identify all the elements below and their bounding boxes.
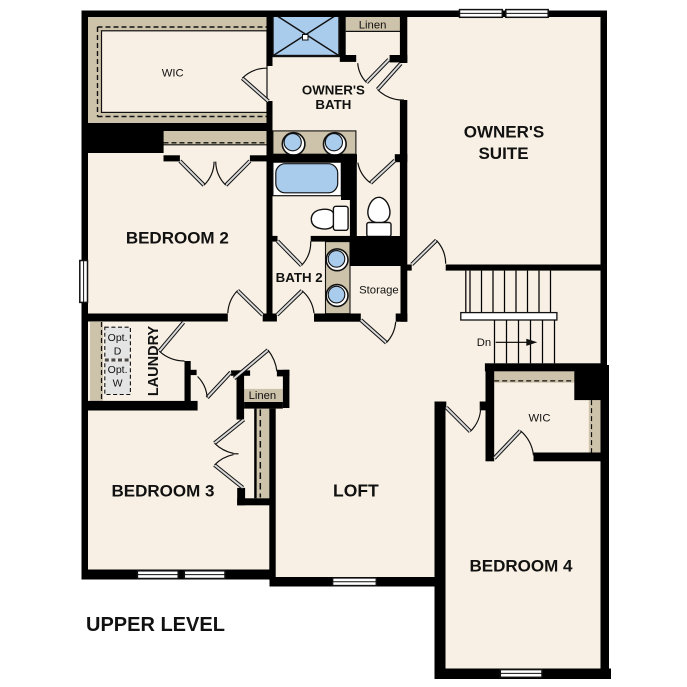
svg-text:BEDROOM 3: BEDROOM 3 <box>112 482 215 501</box>
svg-text:Opt.: Opt. <box>108 332 128 344</box>
svg-text:OWNER'S: OWNER'S <box>302 83 365 98</box>
svg-text:BEDROOM 2: BEDROOM 2 <box>126 229 229 248</box>
svg-text:LAUNDRY: LAUNDRY <box>146 326 162 397</box>
svg-text:UPPER LEVEL: UPPER LEVEL <box>86 614 225 636</box>
svg-text:OWNER'S: OWNER'S <box>464 123 545 142</box>
svg-text:Linen: Linen <box>249 390 277 402</box>
svg-text:BEDROOM 4: BEDROOM 4 <box>470 556 574 575</box>
svg-text:Opt.: Opt. <box>108 364 128 376</box>
svg-text:Dn: Dn <box>477 337 491 349</box>
svg-text:BATH: BATH <box>315 97 351 112</box>
svg-text:LOFT: LOFT <box>333 481 379 501</box>
svg-text:Storage: Storage <box>359 285 399 297</box>
svg-text:WIC: WIC <box>529 413 551 425</box>
svg-text:W: W <box>113 378 123 390</box>
svg-text:D: D <box>114 346 122 358</box>
svg-text:BATH 2: BATH 2 <box>276 270 323 285</box>
svg-text:Linen: Linen <box>359 19 387 31</box>
svg-text:SUITE: SUITE <box>478 144 528 163</box>
svg-text:WIC: WIC <box>162 68 184 80</box>
